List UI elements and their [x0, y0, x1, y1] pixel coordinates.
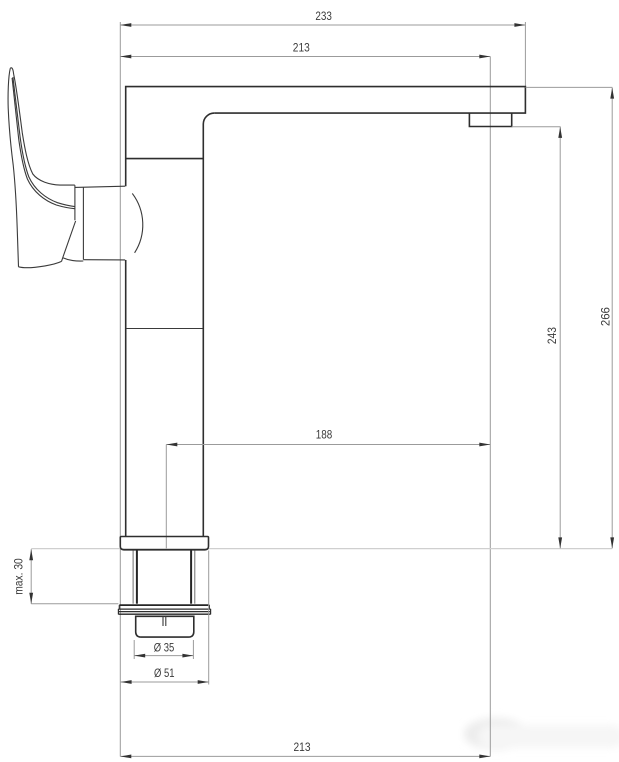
svg-text:213: 213 — [293, 42, 310, 55]
svg-text:213: 213 — [294, 741, 311, 754]
svg-text:Ø 35: Ø 35 — [154, 642, 175, 655]
svg-text:Ø 51: Ø 51 — [154, 667, 175, 680]
svg-text:max. 30: max. 30 — [13, 558, 26, 595]
svg-text:243: 243 — [546, 327, 559, 344]
svg-text:188: 188 — [316, 429, 333, 442]
svg-text:233: 233 — [315, 10, 332, 23]
svg-text:266: 266 — [600, 307, 613, 326]
